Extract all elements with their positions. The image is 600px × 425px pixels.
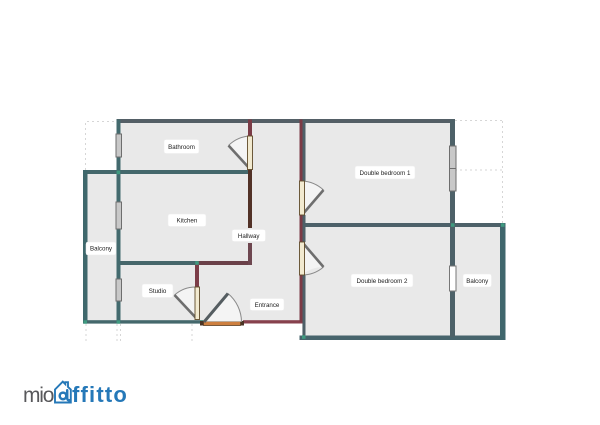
svg-text:Hallway: Hallway: [238, 233, 261, 240]
svg-text:Kitchen: Kitchen: [177, 218, 198, 225]
svg-text:Bathroom: Bathroom: [168, 144, 195, 151]
svg-text:Entrance: Entrance: [255, 302, 280, 309]
svg-text:Studio: Studio: [149, 288, 167, 295]
svg-text:Double bedroom 1: Double bedroom 1: [360, 170, 411, 177]
svg-text:ffitto: ffitto: [72, 382, 128, 407]
svg-text:Double bedroom 2: Double bedroom 2: [357, 278, 408, 285]
svg-text:mio: mio: [23, 384, 54, 407]
svg-text:Balcony: Balcony: [466, 278, 489, 285]
svg-text:Balcony: Balcony: [90, 246, 113, 253]
